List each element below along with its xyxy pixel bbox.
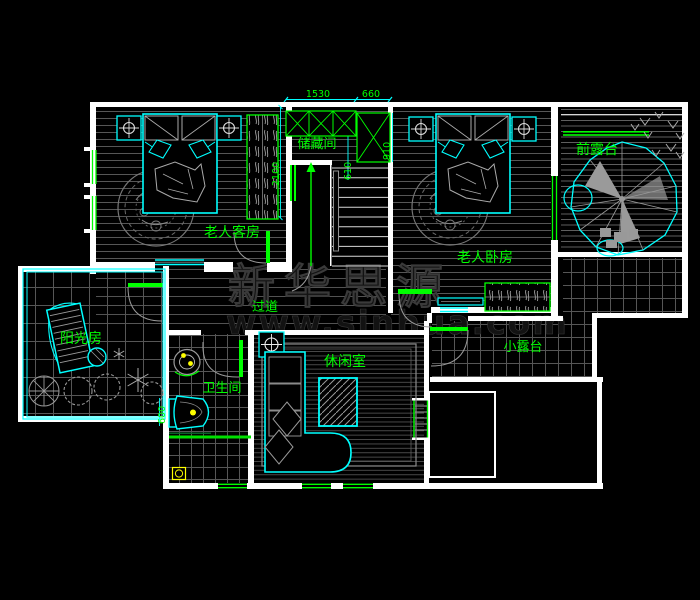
stair-handrail: [334, 171, 339, 251]
bed: [143, 114, 217, 213]
room-label-sunroom: 阳光房: [60, 331, 102, 347]
void-shaft: [429, 392, 495, 477]
cad-drawing-canvas[interactable]: 新华思源 www.sinhua.com: [0, 0, 700, 600]
door-leaf: [290, 165, 296, 201]
bed: [436, 114, 510, 213]
window: [155, 260, 204, 265]
dim-600: 600: [157, 406, 168, 424]
room-label-small-terrace: 小露台: [503, 340, 542, 355]
window: [218, 484, 247, 487]
dim-910: 910: [382, 142, 393, 160]
floor-drain: [173, 468, 186, 480]
tv-shelf: [438, 298, 483, 305]
shower-screen: [169, 433, 211, 434]
dim-660: 660: [362, 89, 380, 100]
window: [553, 176, 557, 240]
toilet: [169, 396, 209, 429]
railing: [563, 131, 649, 133]
room-label-master-bedroom: 老人卧房: [457, 250, 513, 266]
shower-screen: [169, 436, 251, 439]
dim-610: 610: [343, 162, 354, 180]
side-table: [88, 348, 106, 366]
dim-1530: 1530: [306, 89, 330, 100]
ceiling-lamp-symbol: [409, 117, 433, 141]
room-label-guest-bedroom: 老人客房: [204, 224, 260, 241]
coffee-table: [319, 378, 357, 426]
ceiling-lamp-symbol: [217, 116, 241, 140]
window: [302, 484, 331, 487]
room-label-storage: 储藏间: [297, 137, 336, 152]
floor-plan: 新华思源 www.sinhua.com: [0, 0, 700, 600]
room-label-corridor: 过道: [252, 300, 278, 315]
ceiling-lamp-symbol: [512, 117, 536, 141]
room-label-bathroom: 卫生间: [202, 381, 241, 396]
window: [343, 484, 373, 487]
room-label-lounge: 休闲室: [324, 353, 366, 370]
room-label-front-terrace: 前露台: [576, 141, 618, 158]
dim-2100: 2100: [271, 162, 282, 186]
ceiling-lamp-symbol: [117, 116, 141, 140]
